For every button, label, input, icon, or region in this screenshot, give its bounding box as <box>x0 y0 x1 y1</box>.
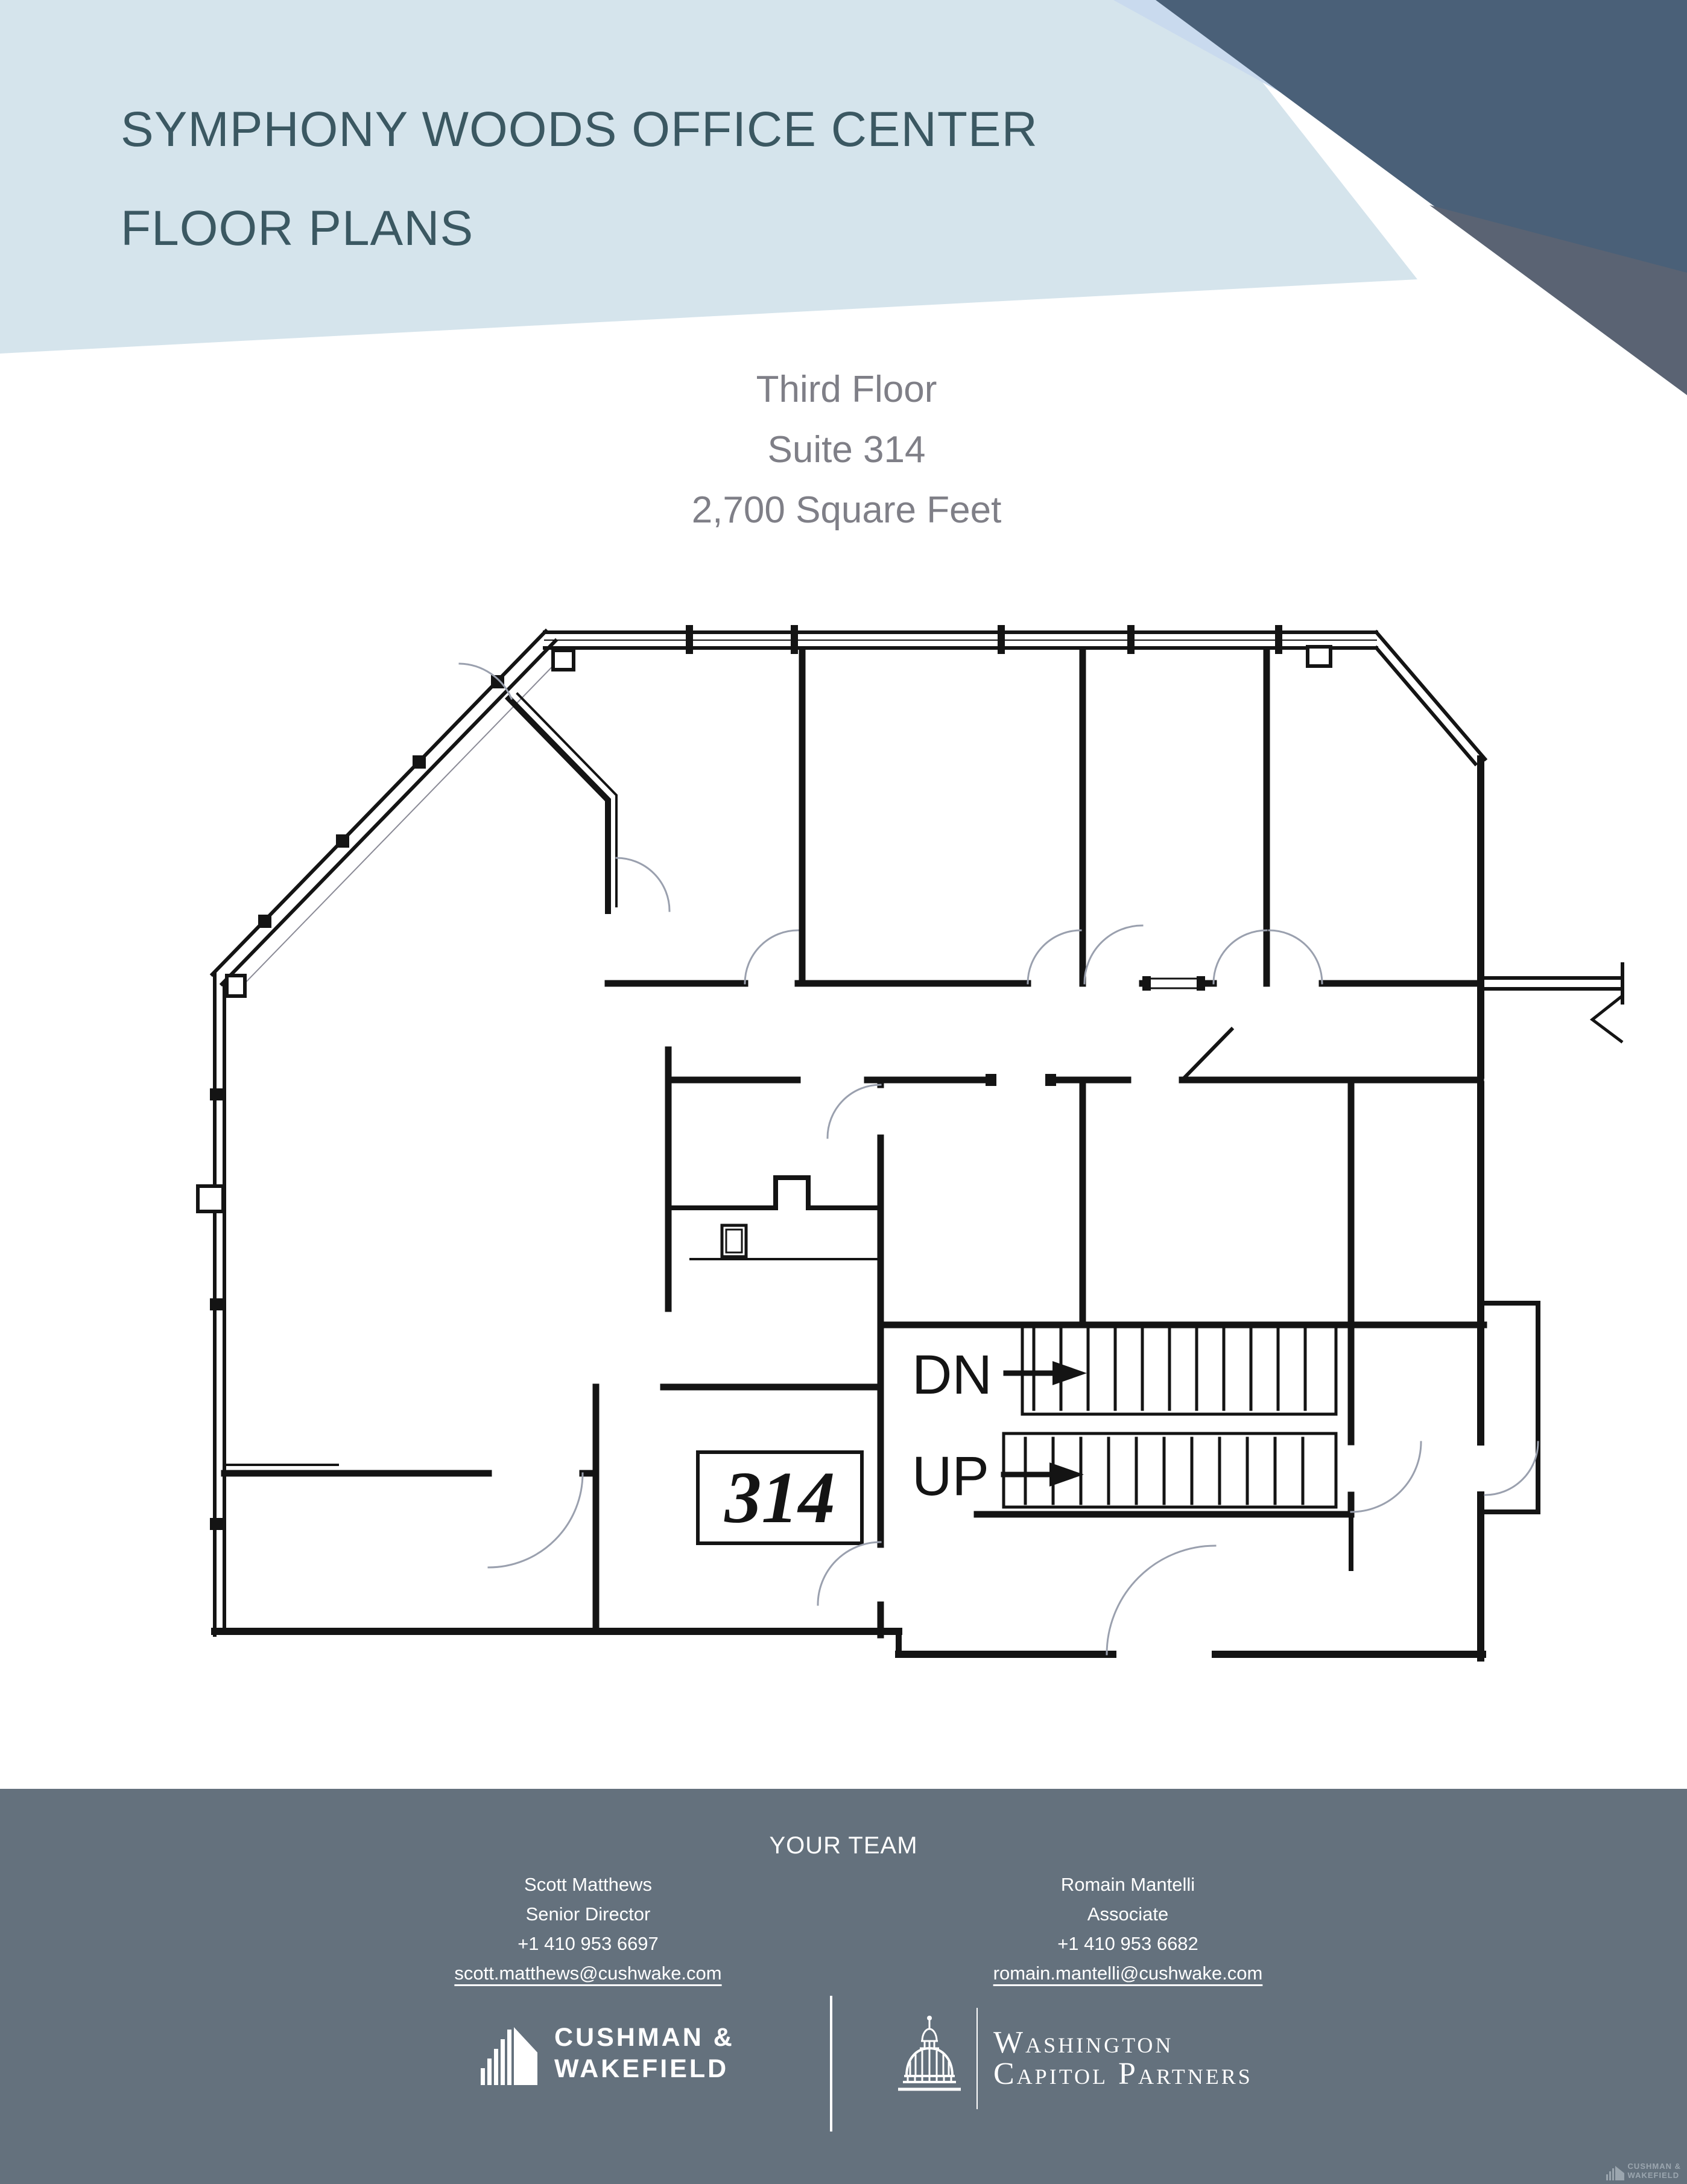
capitol-dome-icon <box>896 2013 963 2104</box>
stair-labels: DN UP <box>912 1344 992 1507</box>
team-member-name: Romain Mantelli <box>856 1870 1399 1899</box>
logo-divider-line <box>830 1996 832 2132</box>
team-member-phone: +1 410 953 6682 <box>856 1929 1399 1958</box>
cushman-wakefield-wordmark: CUSHMAN & WAKEFIELD <box>554 2022 735 2084</box>
suite-number-label: 314 <box>724 1457 835 1538</box>
corridor-right-extension <box>1485 964 1622 1041</box>
corridor-wall <box>608 976 1481 991</box>
team-member-title: Associate <box>856 1899 1399 1929</box>
right-stub-room <box>1485 1303 1538 1512</box>
suite-number-box: 314 <box>698 1452 862 1543</box>
partition-diagonal-office <box>509 694 616 911</box>
team-member-email-link[interactable]: romain.mantelli@cushwake.com <box>993 1963 1263 1984</box>
team-member-name: Scott Matthews <box>317 1870 859 1899</box>
column-marker-left <box>227 976 245 996</box>
exterior-bottom-wall <box>215 1631 1483 1654</box>
stair-down-label: DN <box>912 1344 992 1406</box>
door-swing-arcs <box>460 664 1538 1654</box>
stair-up-label: UP <box>912 1446 989 1507</box>
building-icon <box>1606 2161 1624 2180</box>
footer-heading: YOUR TEAM <box>0 1832 1687 1859</box>
bottom-left-room-walls <box>224 1387 596 1631</box>
team-member-card: Scott Matthews Senior Director +1 410 95… <box>317 1870 859 1988</box>
team-member-title: Senior Director <box>317 1899 859 1929</box>
cushman-wakefield-logo: CUSHMAN & WAKEFIELD <box>480 2021 735 2085</box>
washington-capitol-partners-logo: Washington Capitol Partners <box>896 2008 1253 2109</box>
exterior-topleft-diagonal-wall <box>212 631 564 990</box>
footer-logo-row: CUSHMAN & WAKEFIELD <box>0 2003 1687 2160</box>
column-marker-topright <box>1308 647 1331 666</box>
stair-arrows <box>1004 1361 1087 1487</box>
wcp-divider-line <box>976 2008 978 2109</box>
team-member-email-link[interactable]: scott.matthews@cushwake.com <box>454 1963 721 1984</box>
column-marker-topleft <box>553 650 574 670</box>
team-member-card: Romain Mantelli Associate +1 410 953 668… <box>856 1870 1399 1988</box>
building-icon <box>480 2021 537 2085</box>
exterior-left-wall <box>198 974 224 1635</box>
exterior-top-wall <box>545 629 1376 650</box>
cushman-wakefield-watermark: CUSHMAN & WAKEFIELD <box>1606 2161 1681 2180</box>
page: SYMPHONY WOODS OFFICE CENTER FLOOR PLANS… <box>0 0 1687 2184</box>
kitchenette-detail <box>668 1178 881 1259</box>
wcp-wordmark: Washington Capitol Partners <box>993 2027 1253 2090</box>
exterior-right-wall <box>1376 632 1485 1658</box>
footer: YOUR TEAM Scott Matthews Senior Director… <box>0 1789 1687 2184</box>
team-member-phone: +1 410 953 6697 <box>317 1929 859 1958</box>
